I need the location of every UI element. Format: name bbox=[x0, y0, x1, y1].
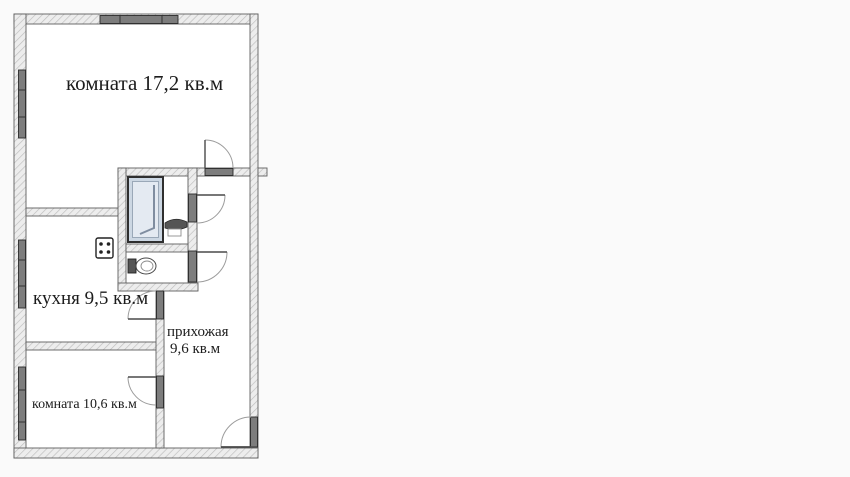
kitchen-doorway bbox=[157, 291, 164, 319]
wall-kitchen-smallroom bbox=[26, 342, 164, 350]
wall-bath-wc-divider bbox=[126, 244, 188, 252]
kitchen-label: кухня 9,5 кв.м bbox=[33, 288, 148, 309]
living-doorway bbox=[205, 169, 233, 176]
kitchen-window-icon bbox=[19, 240, 26, 308]
hallway-label: прихожая bbox=[167, 324, 229, 340]
bathtub-icon bbox=[128, 177, 163, 242]
wall-balcony-stub bbox=[258, 168, 267, 176]
living-room-label: комната 17,2 кв.м bbox=[66, 71, 223, 95]
entrance-doorway bbox=[251, 417, 258, 447]
wall-kitchen-top bbox=[26, 208, 126, 216]
bathroom-doorway bbox=[189, 194, 197, 222]
wall-outer-right bbox=[250, 14, 258, 458]
toilet-icon bbox=[128, 258, 156, 274]
stove-icon bbox=[96, 238, 113, 258]
small-room-window-icon bbox=[19, 367, 26, 440]
wc-doorway bbox=[189, 251, 197, 282]
small-room-doorway bbox=[157, 376, 164, 408]
living-window-icon bbox=[19, 70, 26, 138]
wall-outer-bottom bbox=[14, 448, 258, 458]
wall-sanblock-left bbox=[118, 168, 126, 291]
floor-plan-svg: комната 17,2 кв.м кухня 9,5 кв.м прихожа… bbox=[0, 0, 850, 477]
small-room-label: комната 10,6 кв.м bbox=[32, 397, 137, 412]
top-wall-window-icon bbox=[100, 16, 178, 24]
floor-plan-image: комната 17,2 кв.м кухня 9,5 кв.м прихожа… bbox=[0, 0, 850, 477]
hallway-area-label: 9,6 кв.м bbox=[170, 341, 221, 357]
wall-sanblock-top bbox=[118, 168, 198, 176]
